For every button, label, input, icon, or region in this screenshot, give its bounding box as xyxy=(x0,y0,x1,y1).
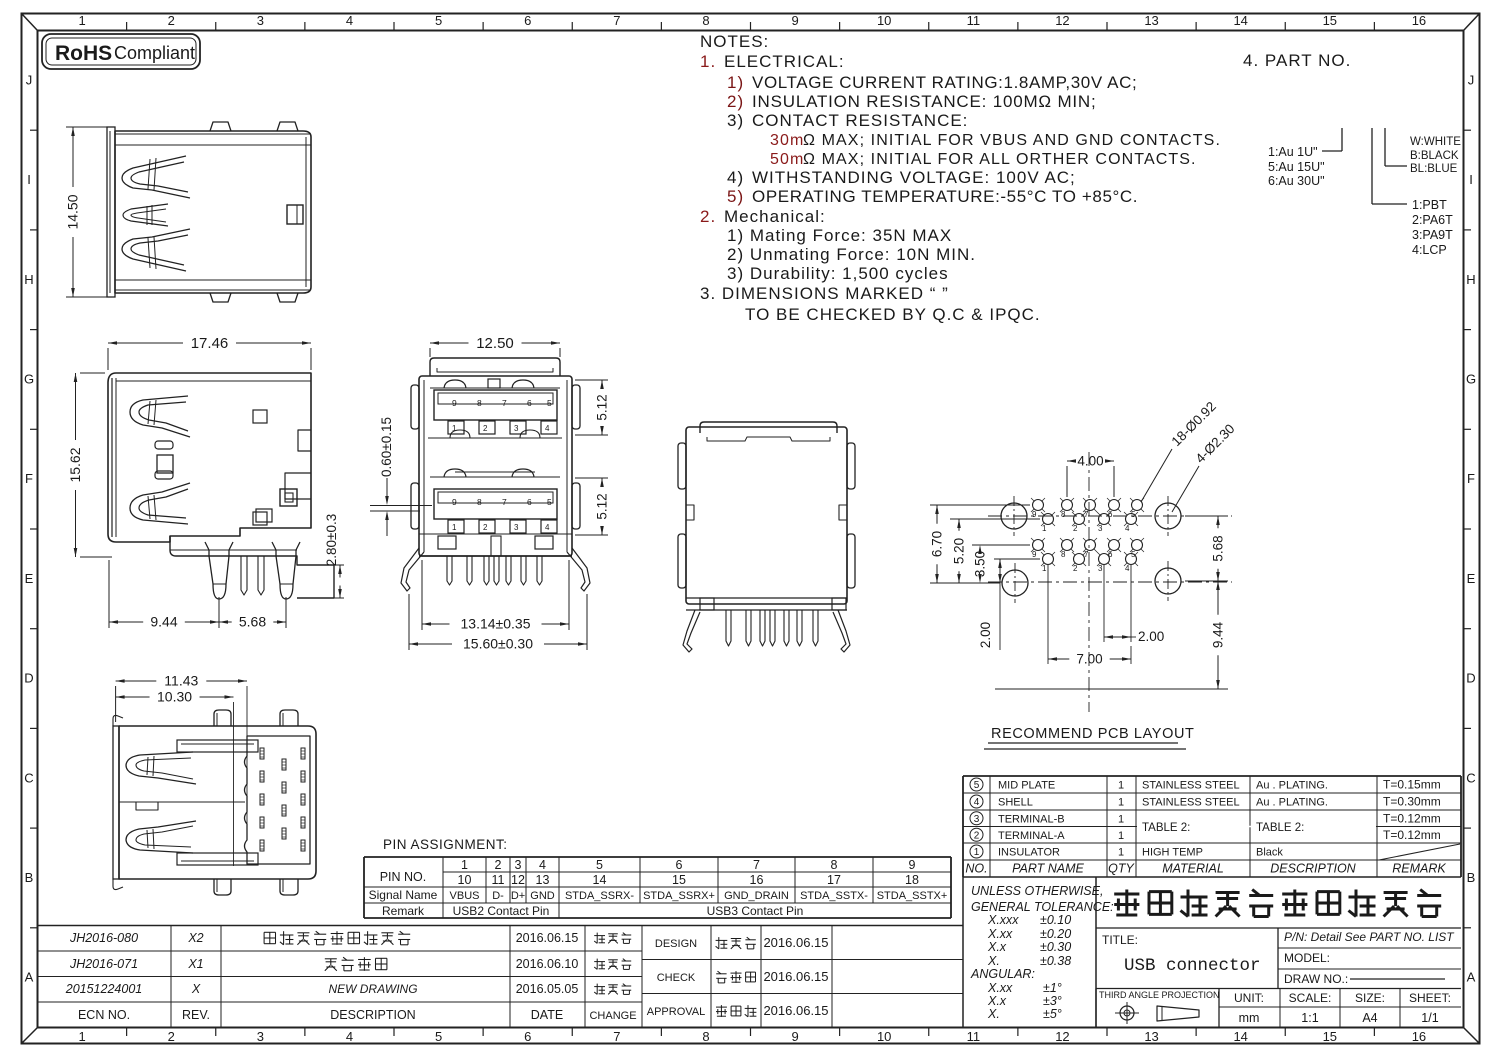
svg-text:4. PART NO.: 4. PART NO. xyxy=(1243,51,1351,70)
svg-text:Black: Black xyxy=(1256,847,1283,859)
svg-text:14: 14 xyxy=(1233,1029,1247,1044)
svg-text:X.xxx: X.xxx xyxy=(987,913,1019,927)
svg-text:STAINLESS STEEL: STAINLESS STEEL xyxy=(1142,797,1240,809)
svg-text:3: 3 xyxy=(1098,524,1103,533)
svg-text:4: 4 xyxy=(1125,524,1130,533)
svg-text:TITLE:: TITLE: xyxy=(1102,933,1138,947)
svg-text:A4: A4 xyxy=(1362,1011,1377,1025)
svg-text:X.x: X.x xyxy=(987,940,1007,954)
svg-text:REV.: REV. xyxy=(182,1008,210,1022)
svg-text:5: 5 xyxy=(596,858,603,872)
svg-text:Au . PLATING.: Au . PLATING. xyxy=(1256,780,1328,792)
svg-text:UNIT:: UNIT: xyxy=(1234,991,1264,1005)
svg-text:2: 2 xyxy=(168,13,175,28)
svg-text:16: 16 xyxy=(750,873,764,887)
svg-text:16: 16 xyxy=(1412,1029,1426,1044)
svg-text:8: 8 xyxy=(702,1029,709,1044)
svg-text:3: 3 xyxy=(257,1029,264,1044)
svg-text:6.70: 6.70 xyxy=(929,531,944,557)
svg-text:13: 13 xyxy=(1144,13,1158,28)
svg-text:PIN ASSIGNMENT:: PIN ASSIGNMENT: xyxy=(383,837,508,852)
svg-text:1: 1 xyxy=(1118,830,1124,842)
svg-text:15: 15 xyxy=(1323,13,1337,28)
svg-text:4:LCP: 4:LCP xyxy=(1412,243,1447,257)
svg-text:5: 5 xyxy=(547,497,552,507)
svg-text:10: 10 xyxy=(877,1029,891,1044)
svg-text:4.00: 4.00 xyxy=(1077,453,1103,468)
svg-text:15: 15 xyxy=(1323,1029,1337,1044)
svg-text:W:WHITE: W:WHITE xyxy=(1410,136,1461,148)
svg-text:7: 7 xyxy=(613,1029,620,1044)
svg-text:8: 8 xyxy=(1061,550,1066,559)
svg-text:RECOMMEND PCB LAYOUT: RECOMMEND PCB LAYOUT xyxy=(991,726,1194,742)
svg-text:GENERAL TOLERANCE:: GENERAL TOLERANCE: xyxy=(971,900,1114,914)
svg-text:2016.06.15: 2016.06.15 xyxy=(516,931,579,945)
svg-text:2: 2 xyxy=(1073,564,1078,573)
svg-text:JH2016-080: JH2016-080 xyxy=(69,931,138,945)
svg-text:D: D xyxy=(24,671,33,686)
svg-text:H: H xyxy=(24,272,33,287)
svg-text:MATERIAL: MATERIAL xyxy=(1162,862,1224,876)
svg-text:10.30: 10.30 xyxy=(157,689,192,705)
svg-text:Mechanical:: Mechanical: xyxy=(724,207,826,226)
svg-text:1:PBT: 1:PBT xyxy=(1412,198,1447,212)
svg-text:8: 8 xyxy=(477,497,482,507)
svg-text:11.43: 11.43 xyxy=(164,673,198,689)
svg-text:2: 2 xyxy=(1073,524,1078,533)
svg-text:14: 14 xyxy=(593,873,607,887)
svg-text:5: 5 xyxy=(435,1029,442,1044)
svg-text:I: I xyxy=(1469,172,1473,187)
svg-text:X1: X1 xyxy=(187,957,203,971)
svg-text:X.xx: X.xx xyxy=(987,927,1013,941)
svg-text:NEW DRAWING: NEW DRAWING xyxy=(328,982,417,996)
svg-text:2.80±0.3: 2.80±0.3 xyxy=(324,514,339,566)
svg-text:4: 4 xyxy=(974,797,980,808)
svg-text:8: 8 xyxy=(1061,510,1066,519)
svg-text:X.x: X.x xyxy=(987,994,1007,1008)
svg-text:REMARK: REMARK xyxy=(1392,862,1446,876)
svg-text:15.62: 15.62 xyxy=(67,447,83,482)
svg-text:NOTES:: NOTES: xyxy=(700,32,769,51)
svg-text:APPROVAL: APPROVAL xyxy=(647,1006,706,1018)
svg-text:T=0.30mm: T=0.30mm xyxy=(1383,795,1441,809)
svg-text:1:1: 1:1 xyxy=(1301,1011,1318,1025)
svg-text:14.50: 14.50 xyxy=(65,194,81,229)
svg-text:CHANGE: CHANGE xyxy=(589,1010,636,1022)
svg-text:G: G xyxy=(1466,371,1476,386)
svg-text:4: 4 xyxy=(545,523,550,532)
svg-text:5.20: 5.20 xyxy=(951,538,966,564)
svg-text:9: 9 xyxy=(909,858,916,872)
svg-text:9: 9 xyxy=(1032,510,1037,519)
svg-text:C: C xyxy=(24,770,33,785)
svg-text:1) Mating Force: 35N MAX: 1) Mating Force: 35N MAX xyxy=(727,226,952,245)
svg-text:TERMINAL-B: TERMINAL-B xyxy=(998,813,1065,825)
svg-text:Signal Name: Signal Name xyxy=(369,888,438,902)
svg-text:3: 3 xyxy=(515,858,522,872)
svg-text:X2: X2 xyxy=(187,931,203,945)
svg-text:3.50: 3.50 xyxy=(972,551,987,577)
svg-text:9: 9 xyxy=(791,13,798,28)
svg-text:3: 3 xyxy=(1098,564,1103,573)
svg-text:2: 2 xyxy=(168,1029,175,1044)
svg-text:SIZE:: SIZE: xyxy=(1355,991,1385,1005)
svg-text:D: D xyxy=(1466,671,1475,686)
svg-text:6: 6 xyxy=(524,1029,531,1044)
svg-text:Compliant: Compliant xyxy=(114,43,195,63)
svg-text:DATE: DATE xyxy=(531,1008,563,1022)
svg-text:2: 2 xyxy=(495,858,502,872)
svg-text:5.12: 5.12 xyxy=(594,394,609,420)
svg-text:JH2016-071: JH2016-071 xyxy=(69,957,138,971)
svg-text:2): 2) xyxy=(727,92,744,111)
svg-text:STDA_SSRX-: STDA_SSRX- xyxy=(565,890,634,902)
svg-text:12: 12 xyxy=(1055,13,1069,28)
svg-text:X: X xyxy=(191,982,201,996)
svg-text:9: 9 xyxy=(1032,550,1037,559)
svg-text:BL:BLUE: BL:BLUE xyxy=(1410,163,1458,175)
svg-text:TO BE CHECKED BY Q.C & IPQC.: TO BE CHECKED BY Q.C & IPQC. xyxy=(745,305,1041,324)
svg-text:14: 14 xyxy=(1233,13,1247,28)
svg-text:X.: X. xyxy=(987,954,1000,968)
svg-text:7: 7 xyxy=(613,13,620,28)
svg-text:50m: 50m xyxy=(770,151,804,168)
svg-text:2:PA6T: 2:PA6T xyxy=(1412,213,1453,227)
svg-text:J: J xyxy=(26,72,33,87)
svg-text:4: 4 xyxy=(346,1029,353,1044)
svg-text:B:BLACK: B:BLACK xyxy=(1410,150,1459,162)
svg-text:1.: 1. xyxy=(700,52,716,71)
svg-text:7.00: 7.00 xyxy=(1076,651,1102,666)
svg-text:4: 4 xyxy=(1125,564,1130,573)
svg-text:MODEL:: MODEL: xyxy=(1284,951,1330,965)
svg-text:1: 1 xyxy=(1118,780,1124,792)
svg-text:5: 5 xyxy=(435,13,442,28)
svg-text:18: 18 xyxy=(905,873,919,887)
svg-text:4: 4 xyxy=(346,13,353,28)
svg-text:INSULATOR: INSULATOR xyxy=(998,847,1060,859)
svg-text:1: 1 xyxy=(1118,847,1124,859)
svg-text:TABLE 2:: TABLE 2: xyxy=(1256,822,1304,834)
svg-text:Au . PLATING.: Au . PLATING. xyxy=(1256,797,1328,809)
svg-text:1): 1) xyxy=(727,73,744,92)
svg-text:12.50: 12.50 xyxy=(476,335,514,352)
svg-text:T=0.15mm: T=0.15mm xyxy=(1383,778,1441,792)
svg-text:7: 7 xyxy=(753,858,760,872)
svg-text:B: B xyxy=(1467,870,1476,885)
svg-text:ECN NO.: ECN NO. xyxy=(78,1008,130,1022)
svg-text:2016.05.05: 2016.05.05 xyxy=(516,982,579,996)
svg-text:6: 6 xyxy=(524,13,531,28)
svg-text:P/N: Detail See PART NO. LIST: P/N: Detail See PART NO. LIST xyxy=(1284,930,1455,944)
svg-text:7: 7 xyxy=(502,497,507,507)
svg-text:10: 10 xyxy=(877,13,891,28)
svg-text:H: H xyxy=(1466,272,1475,287)
svg-text:USB connector: USB connector xyxy=(1124,956,1261,976)
svg-text:UNLESS OTHERWISE,: UNLESS OTHERWISE, xyxy=(971,884,1103,898)
svg-text:2016.06.15: 2016.06.15 xyxy=(763,1003,828,1018)
svg-text:5.12: 5.12 xyxy=(594,493,609,519)
svg-text:13.14±0.35: 13.14±0.35 xyxy=(461,616,531,632)
svg-text:J: J xyxy=(1468,72,1475,87)
svg-text:4: 4 xyxy=(539,858,546,872)
svg-text:2016.06.10: 2016.06.10 xyxy=(516,957,579,971)
svg-text:STDA_SSRX+: STDA_SSRX+ xyxy=(643,890,715,902)
svg-text:1: 1 xyxy=(78,13,85,28)
svg-text:8: 8 xyxy=(477,398,482,408)
svg-text:2: 2 xyxy=(483,424,488,433)
svg-text:USB3 Contact Pin: USB3 Contact Pin xyxy=(707,904,804,918)
svg-text:±5°: ±5° xyxy=(1043,1007,1062,1021)
svg-text:INSULATION RESISTANCE: 100MΩ M: INSULATION RESISTANCE: 100MΩ MIN; xyxy=(752,92,1097,111)
svg-text:1: 1 xyxy=(1042,564,1047,573)
svg-text:A: A xyxy=(1467,970,1476,985)
svg-text:5.68: 5.68 xyxy=(1210,535,1225,561)
svg-text:6: 6 xyxy=(676,858,683,872)
svg-text:1/1: 1/1 xyxy=(1421,1011,1438,1025)
svg-text:8: 8 xyxy=(831,858,838,872)
svg-text:I: I xyxy=(27,172,31,187)
svg-text:DESIGN: DESIGN xyxy=(655,938,697,950)
svg-text:30m: 30m xyxy=(770,132,804,149)
svg-text:9: 9 xyxy=(791,1029,798,1044)
svg-text:2: 2 xyxy=(974,830,980,841)
svg-text:11: 11 xyxy=(492,873,505,887)
svg-text:3) Durability: 1,500 cycles: 3) Durability: 1,500 cycles xyxy=(727,264,949,283)
svg-text:10: 10 xyxy=(458,873,472,887)
svg-text:3:PA9T: 3:PA9T xyxy=(1412,228,1453,242)
svg-text:CONTACT RESISTANCE:: CONTACT RESISTANCE: xyxy=(752,111,968,130)
svg-text:X.: X. xyxy=(987,1007,1000,1021)
svg-text:TERMINAL-A: TERMINAL-A xyxy=(998,830,1065,842)
svg-text:±1°: ±1° xyxy=(1043,981,1062,995)
svg-text:SHELL: SHELL xyxy=(998,797,1033,809)
svg-text:B: B xyxy=(25,870,34,885)
svg-text:F: F xyxy=(25,471,33,486)
svg-text:E: E xyxy=(25,571,34,586)
svg-text:9.44: 9.44 xyxy=(150,614,177,630)
svg-text:12: 12 xyxy=(511,873,525,887)
svg-text:13: 13 xyxy=(1144,1029,1158,1044)
svg-text:T=0.12mm: T=0.12mm xyxy=(1383,811,1441,825)
svg-text:±3°: ±3° xyxy=(1043,994,1062,1008)
svg-text:15: 15 xyxy=(672,873,686,887)
svg-text:1:Au 1U": 1:Au 1U" xyxy=(1268,145,1318,159)
svg-text:1: 1 xyxy=(974,847,980,858)
svg-text:STDA_SSTX+: STDA_SSTX+ xyxy=(877,890,948,902)
svg-text:QTY: QTY xyxy=(1108,862,1135,876)
svg-text:Remark: Remark xyxy=(382,904,425,918)
svg-text:THIRD ANGLE PROJECTION: THIRD ANGLE PROJECTION xyxy=(1099,990,1220,1000)
svg-text:ANGULAR:: ANGULAR: xyxy=(970,967,1035,981)
svg-text:OPERATING TEMPERATURE:-55°C TO: OPERATING TEMPERATURE:-55°C TO +85°C. xyxy=(752,187,1138,206)
svg-text:Ω MAX; INITIAL FOR VBUS AND GN: Ω MAX; INITIAL FOR VBUS AND GND CONTACTS… xyxy=(803,132,1221,149)
svg-text:SCALE:: SCALE: xyxy=(1289,991,1332,1005)
svg-text:17.46: 17.46 xyxy=(191,335,229,352)
svg-text:T=0.12mm: T=0.12mm xyxy=(1383,828,1441,842)
svg-text:E: E xyxy=(1467,571,1476,586)
svg-text:2.: 2. xyxy=(700,207,716,226)
svg-text:11: 11 xyxy=(967,13,981,28)
svg-text:2.00: 2.00 xyxy=(978,622,993,648)
svg-text:TABLE 2:: TABLE 2: xyxy=(1142,822,1190,834)
svg-text:±0.30: ±0.30 xyxy=(1040,940,1071,954)
svg-text:1: 1 xyxy=(461,858,468,872)
svg-text:NO.: NO. xyxy=(965,862,987,876)
svg-text:0.60±0.15: 0.60±0.15 xyxy=(379,417,394,477)
svg-text:MID PLATE: MID PLATE xyxy=(998,780,1055,792)
svg-text:13: 13 xyxy=(536,873,550,887)
svg-text:VOLTAGE CURRENT RATING:1.8AMP,: VOLTAGE CURRENT RATING:1.8AMP,30V AC; xyxy=(752,73,1137,92)
svg-text:2) Unmating Force: 10N MIN.: 2) Unmating Force: 10N MIN. xyxy=(727,245,976,264)
svg-text:C: C xyxy=(1466,770,1475,785)
svg-text:6: 6 xyxy=(527,497,532,507)
svg-text:A: A xyxy=(25,970,34,985)
svg-text:16: 16 xyxy=(1412,13,1426,28)
svg-text:12: 12 xyxy=(1055,1029,1069,1044)
svg-text:5: 5 xyxy=(547,398,552,408)
svg-text:1: 1 xyxy=(1118,813,1124,825)
svg-text:PART NAME: PART NAME xyxy=(1012,862,1084,876)
svg-text:USB2 Contact Pin: USB2 Contact Pin xyxy=(453,904,550,918)
svg-text:6: 6 xyxy=(527,398,532,408)
svg-text:D+: D+ xyxy=(511,890,525,902)
svg-text:5): 5) xyxy=(727,187,744,206)
svg-text:7: 7 xyxy=(502,398,507,408)
svg-text:X.xx: X.xx xyxy=(987,981,1013,995)
svg-text:5: 5 xyxy=(974,780,980,791)
svg-text:3: 3 xyxy=(514,523,519,532)
svg-text:3. DIMENSIONS MARKED “ ”: 3. DIMENSIONS MARKED “ ” xyxy=(700,284,949,303)
svg-text:3: 3 xyxy=(974,814,980,825)
svg-text:20151224001: 20151224001 xyxy=(65,982,142,996)
svg-text:2016.06.15: 2016.06.15 xyxy=(763,935,828,950)
svg-text:CHECK: CHECK xyxy=(657,972,696,984)
svg-text:15.60±0.30: 15.60±0.30 xyxy=(463,636,533,652)
svg-text:5.68: 5.68 xyxy=(239,614,266,630)
svg-text:STAINLESS STEEL: STAINLESS STEEL xyxy=(1142,780,1240,792)
svg-text:VBUS: VBUS xyxy=(450,890,480,902)
svg-text:1: 1 xyxy=(1042,524,1047,533)
svg-text:WITHSTANDING VOLTAGE: 100V AC;: WITHSTANDING VOLTAGE: 100V AC; xyxy=(752,168,1076,187)
svg-text:GND_DRAIN: GND_DRAIN xyxy=(724,890,789,902)
svg-text:2.00: 2.00 xyxy=(1138,629,1164,644)
svg-text:SHEET:: SHEET: xyxy=(1409,991,1451,1005)
svg-text:±0.20: ±0.20 xyxy=(1040,927,1071,941)
svg-text:3): 3) xyxy=(727,111,744,130)
svg-text:GND: GND xyxy=(530,890,555,902)
svg-text:17: 17 xyxy=(827,873,841,887)
svg-text:1: 1 xyxy=(78,1029,85,1044)
svg-text:8: 8 xyxy=(702,13,709,28)
svg-text:3: 3 xyxy=(514,424,519,433)
svg-text:±0.38: ±0.38 xyxy=(1040,954,1071,968)
svg-text:5:Au 15U": 5:Au 15U" xyxy=(1268,160,1325,174)
svg-text:4: 4 xyxy=(545,424,550,433)
svg-text:9.44: 9.44 xyxy=(1210,621,1225,648)
svg-text:G: G xyxy=(24,371,34,386)
svg-text:RoHS: RoHS xyxy=(55,42,112,65)
svg-text:ELECTRICAL:: ELECTRICAL: xyxy=(724,52,845,71)
svg-text:F: F xyxy=(1467,471,1475,486)
svg-text:mm: mm xyxy=(1239,1011,1260,1025)
svg-text:4): 4) xyxy=(727,168,744,187)
svg-text:11: 11 xyxy=(967,1029,981,1044)
svg-text:STDA_SSTX-: STDA_SSTX- xyxy=(800,890,868,902)
svg-text:9: 9 xyxy=(452,497,457,507)
svg-text:HIGH TEMP: HIGH TEMP xyxy=(1142,847,1203,859)
svg-text:2016.06.15: 2016.06.15 xyxy=(763,969,828,984)
svg-text:2: 2 xyxy=(483,523,488,532)
svg-text:DRAW NO.:: DRAW NO.: xyxy=(1284,972,1348,986)
svg-text:1: 1 xyxy=(452,523,457,532)
svg-text:PIN NO.: PIN NO. xyxy=(380,870,427,884)
svg-text:6:Au 30U": 6:Au 30U" xyxy=(1268,174,1325,188)
svg-text:±0.10: ±0.10 xyxy=(1040,913,1071,927)
svg-text:DESCRIPTION: DESCRIPTION xyxy=(1270,862,1356,876)
svg-text:DESCRIPTION: DESCRIPTION xyxy=(330,1008,415,1022)
svg-text:1: 1 xyxy=(1118,797,1124,809)
svg-text:9: 9 xyxy=(452,398,457,408)
svg-text:3: 3 xyxy=(257,13,264,28)
svg-text:D-: D- xyxy=(492,890,504,902)
svg-text:Ω MAX; INITIAL FOR ALL ORTHER: Ω MAX; INITIAL FOR ALL ORTHER CONTACTS. xyxy=(803,151,1197,168)
